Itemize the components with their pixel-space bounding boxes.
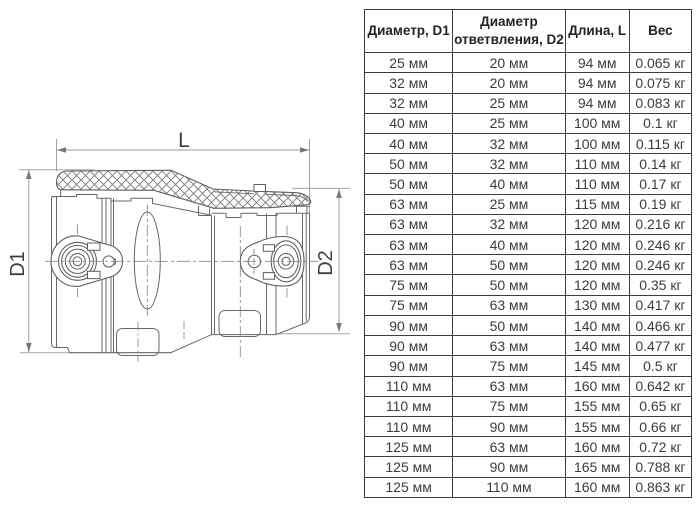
- svg-text:L: L: [178, 129, 190, 152]
- svg-text:D1: D1: [7, 251, 29, 277]
- svg-text:D2: D2: [315, 250, 337, 276]
